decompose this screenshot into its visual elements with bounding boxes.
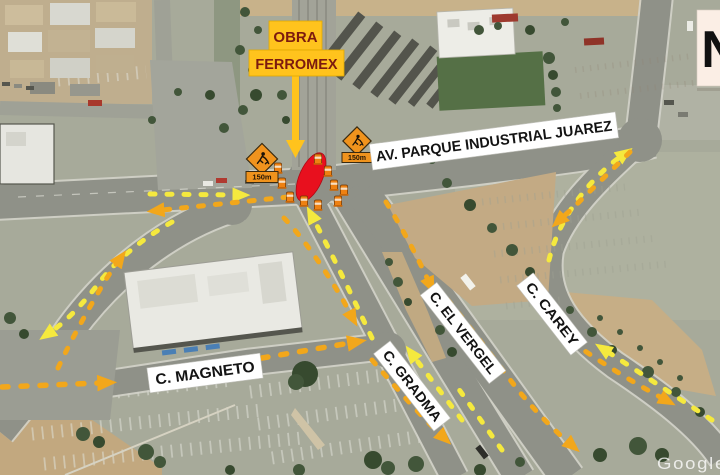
traffic-drum-icon (277, 178, 286, 189)
map-canvas: 150m 150m OBRA FERROMEX AV. PARQUE INDUS… (0, 0, 720, 475)
compass-label: N (701, 21, 720, 79)
traffic-drum-icon (339, 185, 348, 196)
traffic-drum-icon (299, 196, 308, 207)
traffic-drum-icon (333, 196, 342, 207)
distance-label: 150m (252, 173, 272, 182)
satellite-detour-map: 150m 150m OBRA FERROMEX AV. PARQUE INDUS… (0, 0, 720, 475)
traffic-drum-icon (329, 180, 338, 191)
callout-line2: FERROMEX (255, 57, 338, 73)
traffic-drum-icon (313, 154, 322, 165)
traffic-drum-icon (313, 200, 322, 211)
traffic-drum-icon (285, 192, 294, 203)
distance-label: 150m (348, 155, 366, 162)
callout-line1: OBRA (273, 29, 317, 46)
north-compass: N (697, 10, 720, 91)
traffic-drum-icon (323, 166, 332, 177)
google-watermark: Google (657, 455, 720, 473)
